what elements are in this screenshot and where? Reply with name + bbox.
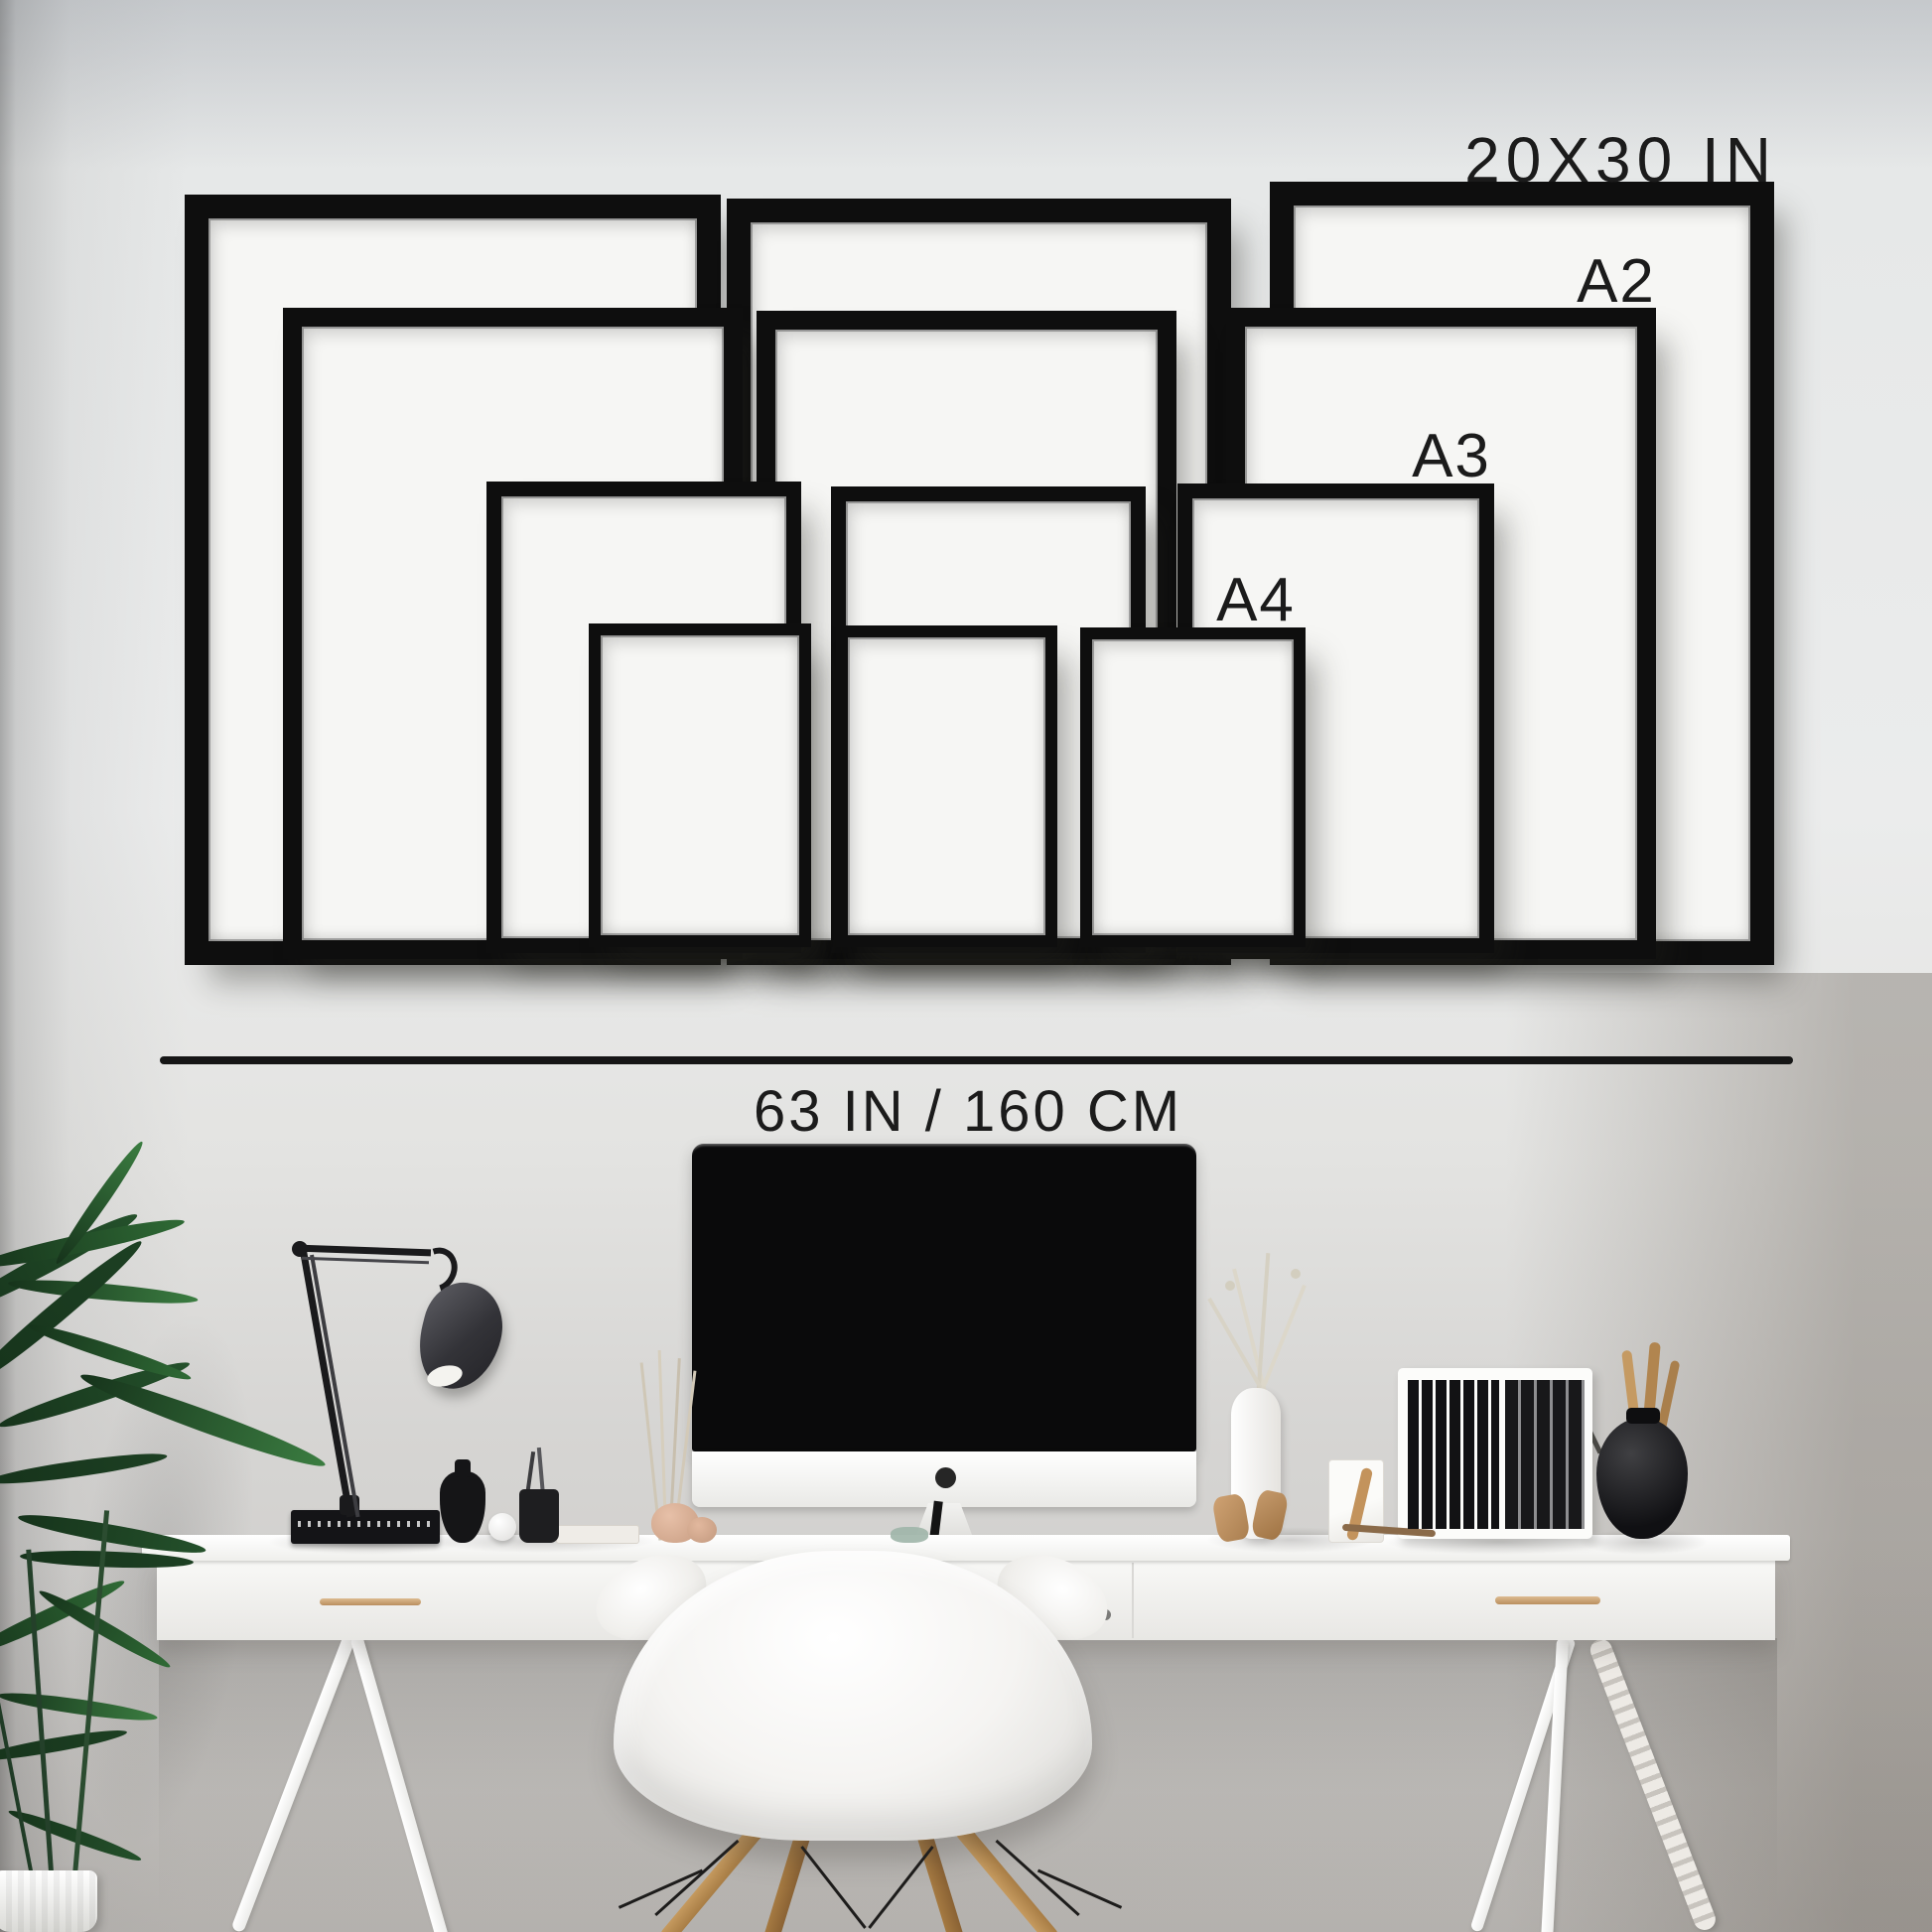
black-folder-slats [1408,1380,1499,1529]
palm-leaf-11 [0,1688,159,1725]
desk-leg-right-b [1541,1638,1569,1932]
desk-leg-left-b [349,1634,449,1932]
black-round-vase [1596,1418,1688,1539]
chair-wooden-leg-2 [953,1822,1061,1932]
chair-wire-strut-3 [800,1846,866,1929]
lamp-arm-horizontal-rod2 [302,1257,429,1264]
desk-leg-right-braided [1587,1636,1719,1932]
label-a4: A4 [1216,565,1296,635]
width-caption: 63 IN / 160 CM [754,1078,1182,1145]
branch-tip-blob-2 [1291,1269,1301,1279]
monitor-logo-dot [935,1467,956,1488]
brush-handle-3 [1657,1360,1681,1432]
palm-leaf-12 [0,1725,128,1765]
label-a2: A2 [1577,246,1656,317]
pen-cup [519,1489,559,1543]
palm-leaf-14 [36,1586,174,1673]
monitor-screen [692,1144,1196,1451]
size-guide-mockup: 20X30 IN A2 A3 A4 63 IN / 160 CM [0,0,1932,1932]
branch-tip-blob-1 [1225,1281,1235,1291]
chair-wire-strut-4 [868,1846,933,1929]
chair-wooden-leg-1 [657,1822,765,1932]
desk-leg-left-a [230,1634,355,1932]
bud-vase-neck [455,1459,471,1477]
pink-stone-small [687,1517,717,1543]
notebook-stack [556,1525,639,1544]
label-a3: A3 [1412,421,1491,491]
lamp-shade [409,1275,512,1398]
palm-leaf-10 [0,1575,128,1661]
frame-a4-right [1080,627,1306,947]
frame-a4-left [589,623,811,947]
label-20x30in: 20X30 IN [1464,123,1777,197]
lamp-arm-horizontal [298,1245,431,1257]
drawer-handle-right [1495,1596,1600,1604]
lamp-base-book-stack [291,1510,440,1544]
width-measure-line [160,1056,1793,1064]
green-glass-dish [891,1527,928,1543]
frame-a4-center [836,625,1057,947]
book-spine-text [298,1521,433,1527]
lamp-arm-vertical-rod2 [310,1255,359,1518]
chair-wooden-leg-4 [915,1829,968,1932]
round-vase-neck [1626,1408,1660,1424]
palm-leaf-8 [0,1449,168,1489]
plant-pot [0,1870,97,1932]
palm-leaf-6 [26,1318,193,1385]
drawer-handle-left [320,1598,421,1605]
chair-wooden-leg-3 [759,1829,812,1932]
drawer-seam-right [1132,1563,1134,1638]
white-sphere [488,1513,516,1541]
lamp-elbow-joint [292,1241,308,1257]
streaked-magazines [1505,1380,1585,1529]
lamp-arm-vertical [300,1250,353,1517]
